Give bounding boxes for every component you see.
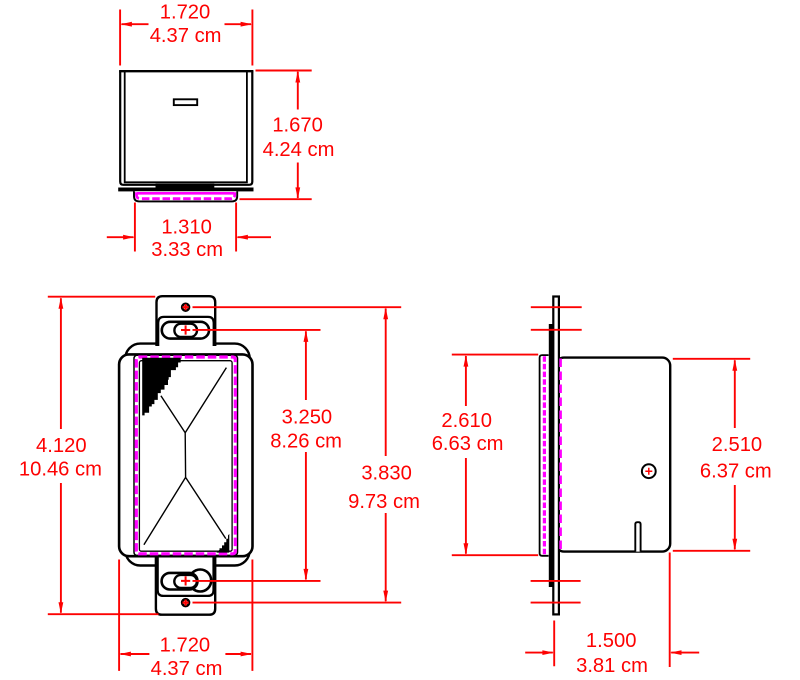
svg-text:6.63 cm: 6.63 cm — [432, 433, 504, 455]
svg-text:1.500: 1.500 — [586, 630, 637, 652]
svg-text:4.37 cm: 4.37 cm — [151, 658, 223, 680]
svg-text:4.37 cm: 4.37 cm — [150, 25, 222, 47]
svg-text:9.73 cm: 9.73 cm — [348, 491, 420, 513]
svg-text:2.610: 2.610 — [441, 410, 492, 432]
svg-text:3.250: 3.250 — [282, 407, 333, 429]
svg-text:1.720: 1.720 — [160, 634, 211, 656]
svg-text:10.46 cm: 10.46 cm — [19, 459, 102, 481]
svg-text:8.26 cm: 8.26 cm — [270, 431, 342, 453]
svg-text:1.670: 1.670 — [272, 115, 323, 137]
svg-text:3.81 cm: 3.81 cm — [576, 655, 648, 677]
svg-text:4.120: 4.120 — [36, 435, 87, 457]
svg-text:3.33 cm: 3.33 cm — [151, 239, 223, 261]
svg-text:2.510: 2.510 — [712, 434, 763, 456]
svg-text:4.24 cm: 4.24 cm — [263, 139, 335, 161]
svg-text:1.310: 1.310 — [161, 217, 212, 239]
svg-text:1.720: 1.720 — [160, 1, 211, 23]
svg-text:6.37 cm: 6.37 cm — [700, 460, 772, 482]
svg-text:3.830: 3.830 — [361, 463, 412, 485]
